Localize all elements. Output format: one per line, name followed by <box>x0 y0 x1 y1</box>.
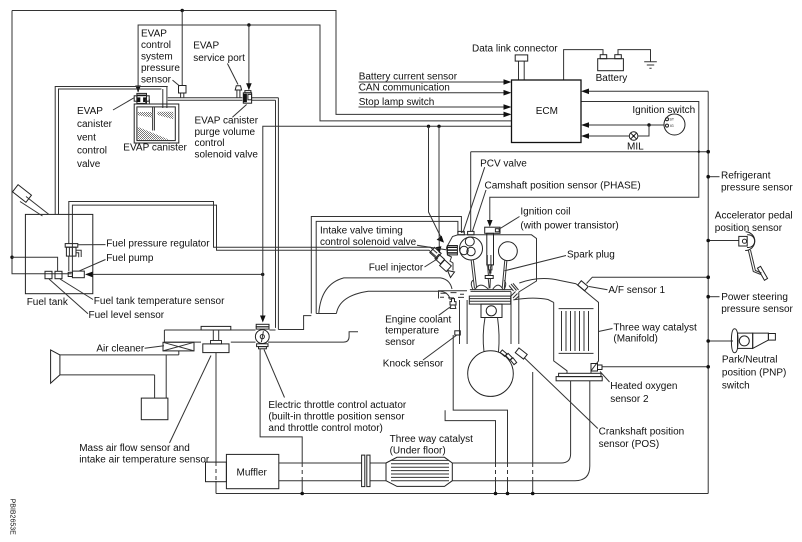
svg-text:ECM: ECM <box>536 106 558 117</box>
svg-text:Data link connector: Data link connector <box>472 43 558 54</box>
svg-text:sensor: sensor <box>141 75 172 86</box>
svg-text:EVAP canister: EVAP canister <box>123 143 187 154</box>
svg-text:Fuel pump: Fuel pump <box>106 253 154 264</box>
svg-text:control: control <box>141 40 171 51</box>
svg-text:(with power transistor): (with power transistor) <box>520 221 618 232</box>
svg-text:Fuel pressure regulator: Fuel pressure regulator <box>106 239 210 250</box>
svg-text:Engine coolant: Engine coolant <box>385 315 451 326</box>
svg-text:valve: valve <box>77 159 101 170</box>
svg-text:EVAP canister: EVAP canister <box>195 116 259 127</box>
svg-text:CAN communication: CAN communication <box>359 83 450 94</box>
svg-text:MIL: MIL <box>627 141 644 152</box>
svg-text:Crankshaft position: Crankshaft position <box>599 427 685 438</box>
svg-text:EVAP: EVAP <box>77 106 103 117</box>
svg-text:control solenoid valve: control solenoid valve <box>320 237 417 248</box>
svg-text:Power steering: Power steering <box>721 292 788 303</box>
svg-text:intake air temperature sensor: intake air temperature sensor <box>79 454 210 465</box>
svg-text:Battery: Battery <box>596 73 628 84</box>
svg-text:Accelerator pedal: Accelerator pedal <box>715 211 793 222</box>
svg-text:(Manifold): (Manifold) <box>613 334 657 345</box>
svg-text:IG: IG <box>670 124 674 128</box>
svg-text:Mass air flow sensor and: Mass air flow sensor and <box>79 443 190 454</box>
svg-text:temperature: temperature <box>385 326 439 337</box>
svg-text:Refrigerant: Refrigerant <box>721 170 771 181</box>
svg-text:position sensor: position sensor <box>715 223 783 234</box>
svg-text:sensor: sensor <box>385 337 416 348</box>
svg-text:(built-in throttle position se: (built-in throttle position sensor <box>268 412 405 423</box>
svg-text:Fuel level sensor: Fuel level sensor <box>89 310 165 321</box>
svg-text:sensor (POS): sensor (POS) <box>599 439 660 450</box>
svg-text:Park/Neutral: Park/Neutral <box>722 355 778 366</box>
svg-text:system: system <box>141 52 173 63</box>
svg-text:EVAP: EVAP <box>193 41 219 52</box>
svg-text:A/F sensor 1: A/F sensor 1 <box>608 285 665 296</box>
svg-text:purge volume: purge volume <box>195 127 256 138</box>
svg-text:Air cleaner: Air cleaner <box>96 344 144 355</box>
svg-text:Ignition switch: Ignition switch <box>632 105 695 116</box>
svg-text:pressure sensor: pressure sensor <box>721 304 793 315</box>
svg-text:control: control <box>195 138 225 149</box>
svg-text:Battery current sensor: Battery current sensor <box>359 72 458 83</box>
svg-text:Electric throttle control actu: Electric throttle control actuator <box>268 400 407 411</box>
svg-text:Fuel tank temperature sensor: Fuel tank temperature sensor <box>94 296 225 307</box>
svg-text:Stop lamp switch: Stop lamp switch <box>359 97 435 108</box>
svg-text:and throttle control motor): and throttle control motor) <box>268 423 383 434</box>
svg-text:position (PNP): position (PNP) <box>722 367 786 378</box>
svg-text:pressure sensor: pressure sensor <box>721 182 793 193</box>
svg-text:switch: switch <box>722 380 750 391</box>
svg-text:Three way catalyst: Three way catalyst <box>390 434 474 445</box>
svg-text:Ignition coil: Ignition coil <box>520 207 570 218</box>
svg-text:Camshaft position sensor (PHAS: Camshaft position sensor (PHASE) <box>485 180 641 191</box>
svg-text:Intake valve timing: Intake valve timing <box>320 226 403 237</box>
svg-text:Heated oxygen: Heated oxygen <box>610 381 677 392</box>
svg-text:Fuel injector: Fuel injector <box>369 263 424 274</box>
svg-text:Fuel tank: Fuel tank <box>27 297 69 308</box>
svg-text:control: control <box>77 146 107 157</box>
svg-text:pressure: pressure <box>141 63 180 74</box>
svg-text:Spark plug: Spark plug <box>567 249 615 260</box>
svg-text:canister: canister <box>77 119 113 130</box>
svg-text:PCV valve: PCV valve <box>480 158 527 169</box>
svg-text:vent: vent <box>77 132 96 143</box>
svg-text:EVAP: EVAP <box>141 29 167 40</box>
svg-text:Three way catalyst: Three way catalyst <box>613 323 697 334</box>
svg-text:service port: service port <box>193 53 245 64</box>
svg-text:PBIB2653E: PBIB2653E <box>9 499 16 536</box>
svg-text:Knock sensor: Knock sensor <box>383 359 444 370</box>
svg-text:(Under floor): (Under floor) <box>390 445 446 456</box>
svg-text:solenoid valve: solenoid valve <box>195 149 259 160</box>
svg-text:Muffler: Muffler <box>237 468 268 479</box>
svg-text:sensor 2: sensor 2 <box>610 394 649 405</box>
